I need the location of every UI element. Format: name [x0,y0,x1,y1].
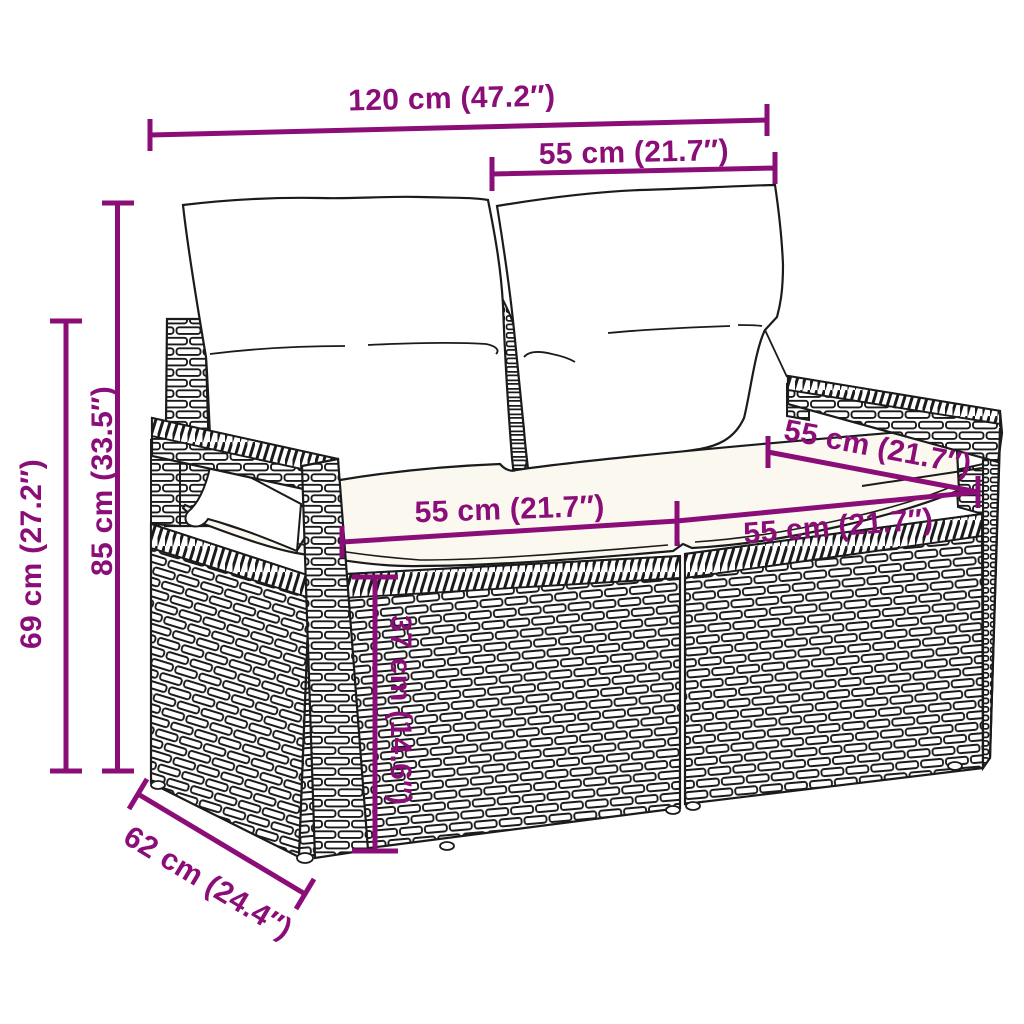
svg-text:55 cm (21.7″): 55 cm (21.7″) [414,490,605,530]
svg-text:69 cm (27.2″): 69 cm (27.2″) [15,459,48,649]
svg-text:85 cm (33.5″): 85 cm (33.5″) [86,386,119,576]
svg-text:55 cm (21.7″): 55 cm (21.7″) [538,134,729,171]
svg-text:37 cm (14.6″): 37 cm (14.6″) [384,615,417,805]
svg-text:120 cm (47.2″): 120 cm (47.2″) [348,79,556,117]
